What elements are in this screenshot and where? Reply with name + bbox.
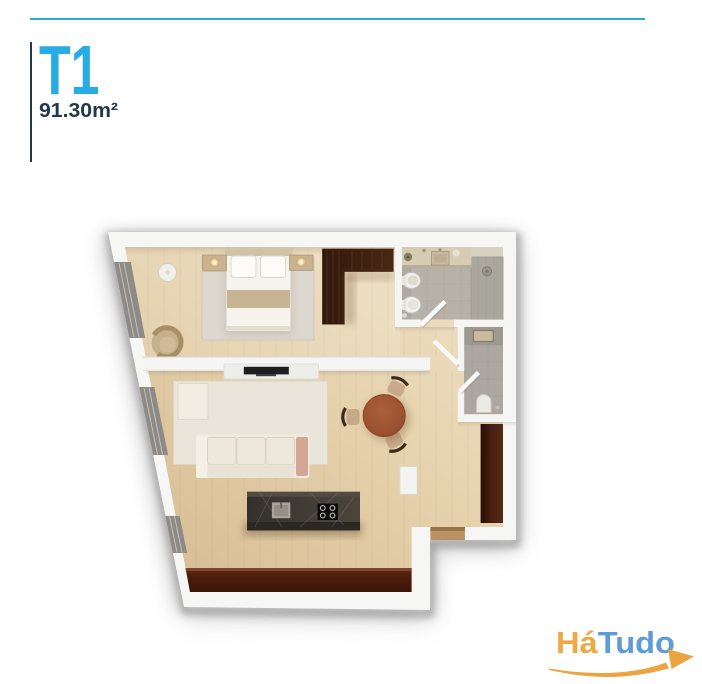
svg-text:HáTudo: HáTudo [556, 626, 675, 660]
svg-text:T1: T1 [39, 31, 100, 109]
svg-text:91.30m²: 91.30m² [39, 100, 118, 122]
